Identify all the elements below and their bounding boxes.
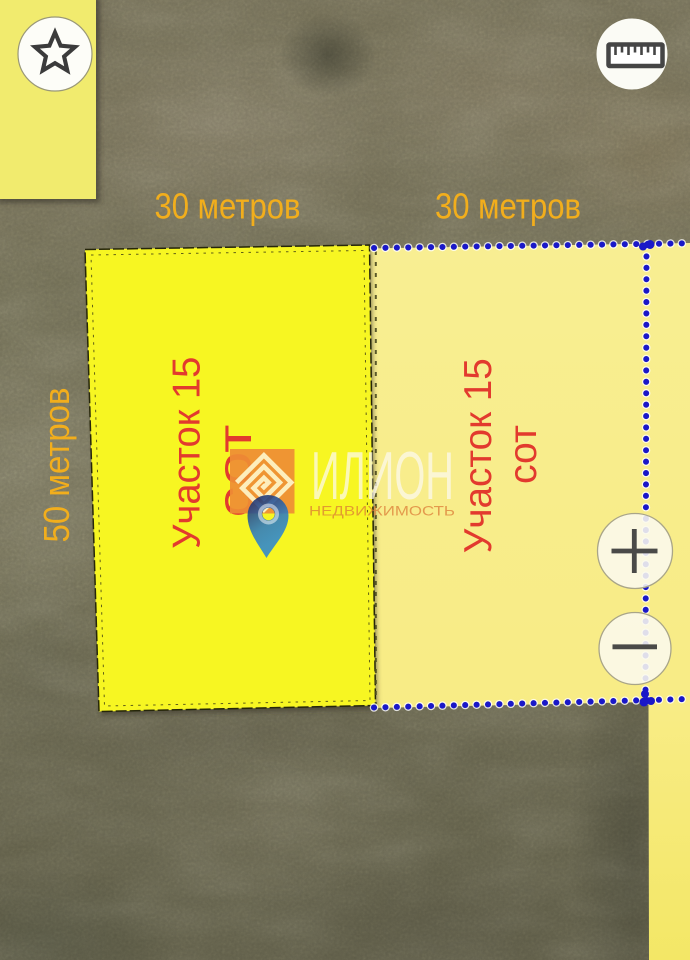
svg-text:Участок 15: Участок 15 xyxy=(457,358,500,553)
svg-text:сот: сот xyxy=(502,425,545,484)
svg-text:30 метров: 30 метров xyxy=(155,186,301,227)
svg-text:НЕДВИЖИМОСТЬ: НЕДВИЖИМОСТЬ xyxy=(309,503,455,519)
svg-text:50 метров: 50 метров xyxy=(36,388,77,543)
svg-text:30 метров: 30 метров xyxy=(435,186,581,227)
svg-text:Участок 15: Участок 15 xyxy=(166,357,209,549)
